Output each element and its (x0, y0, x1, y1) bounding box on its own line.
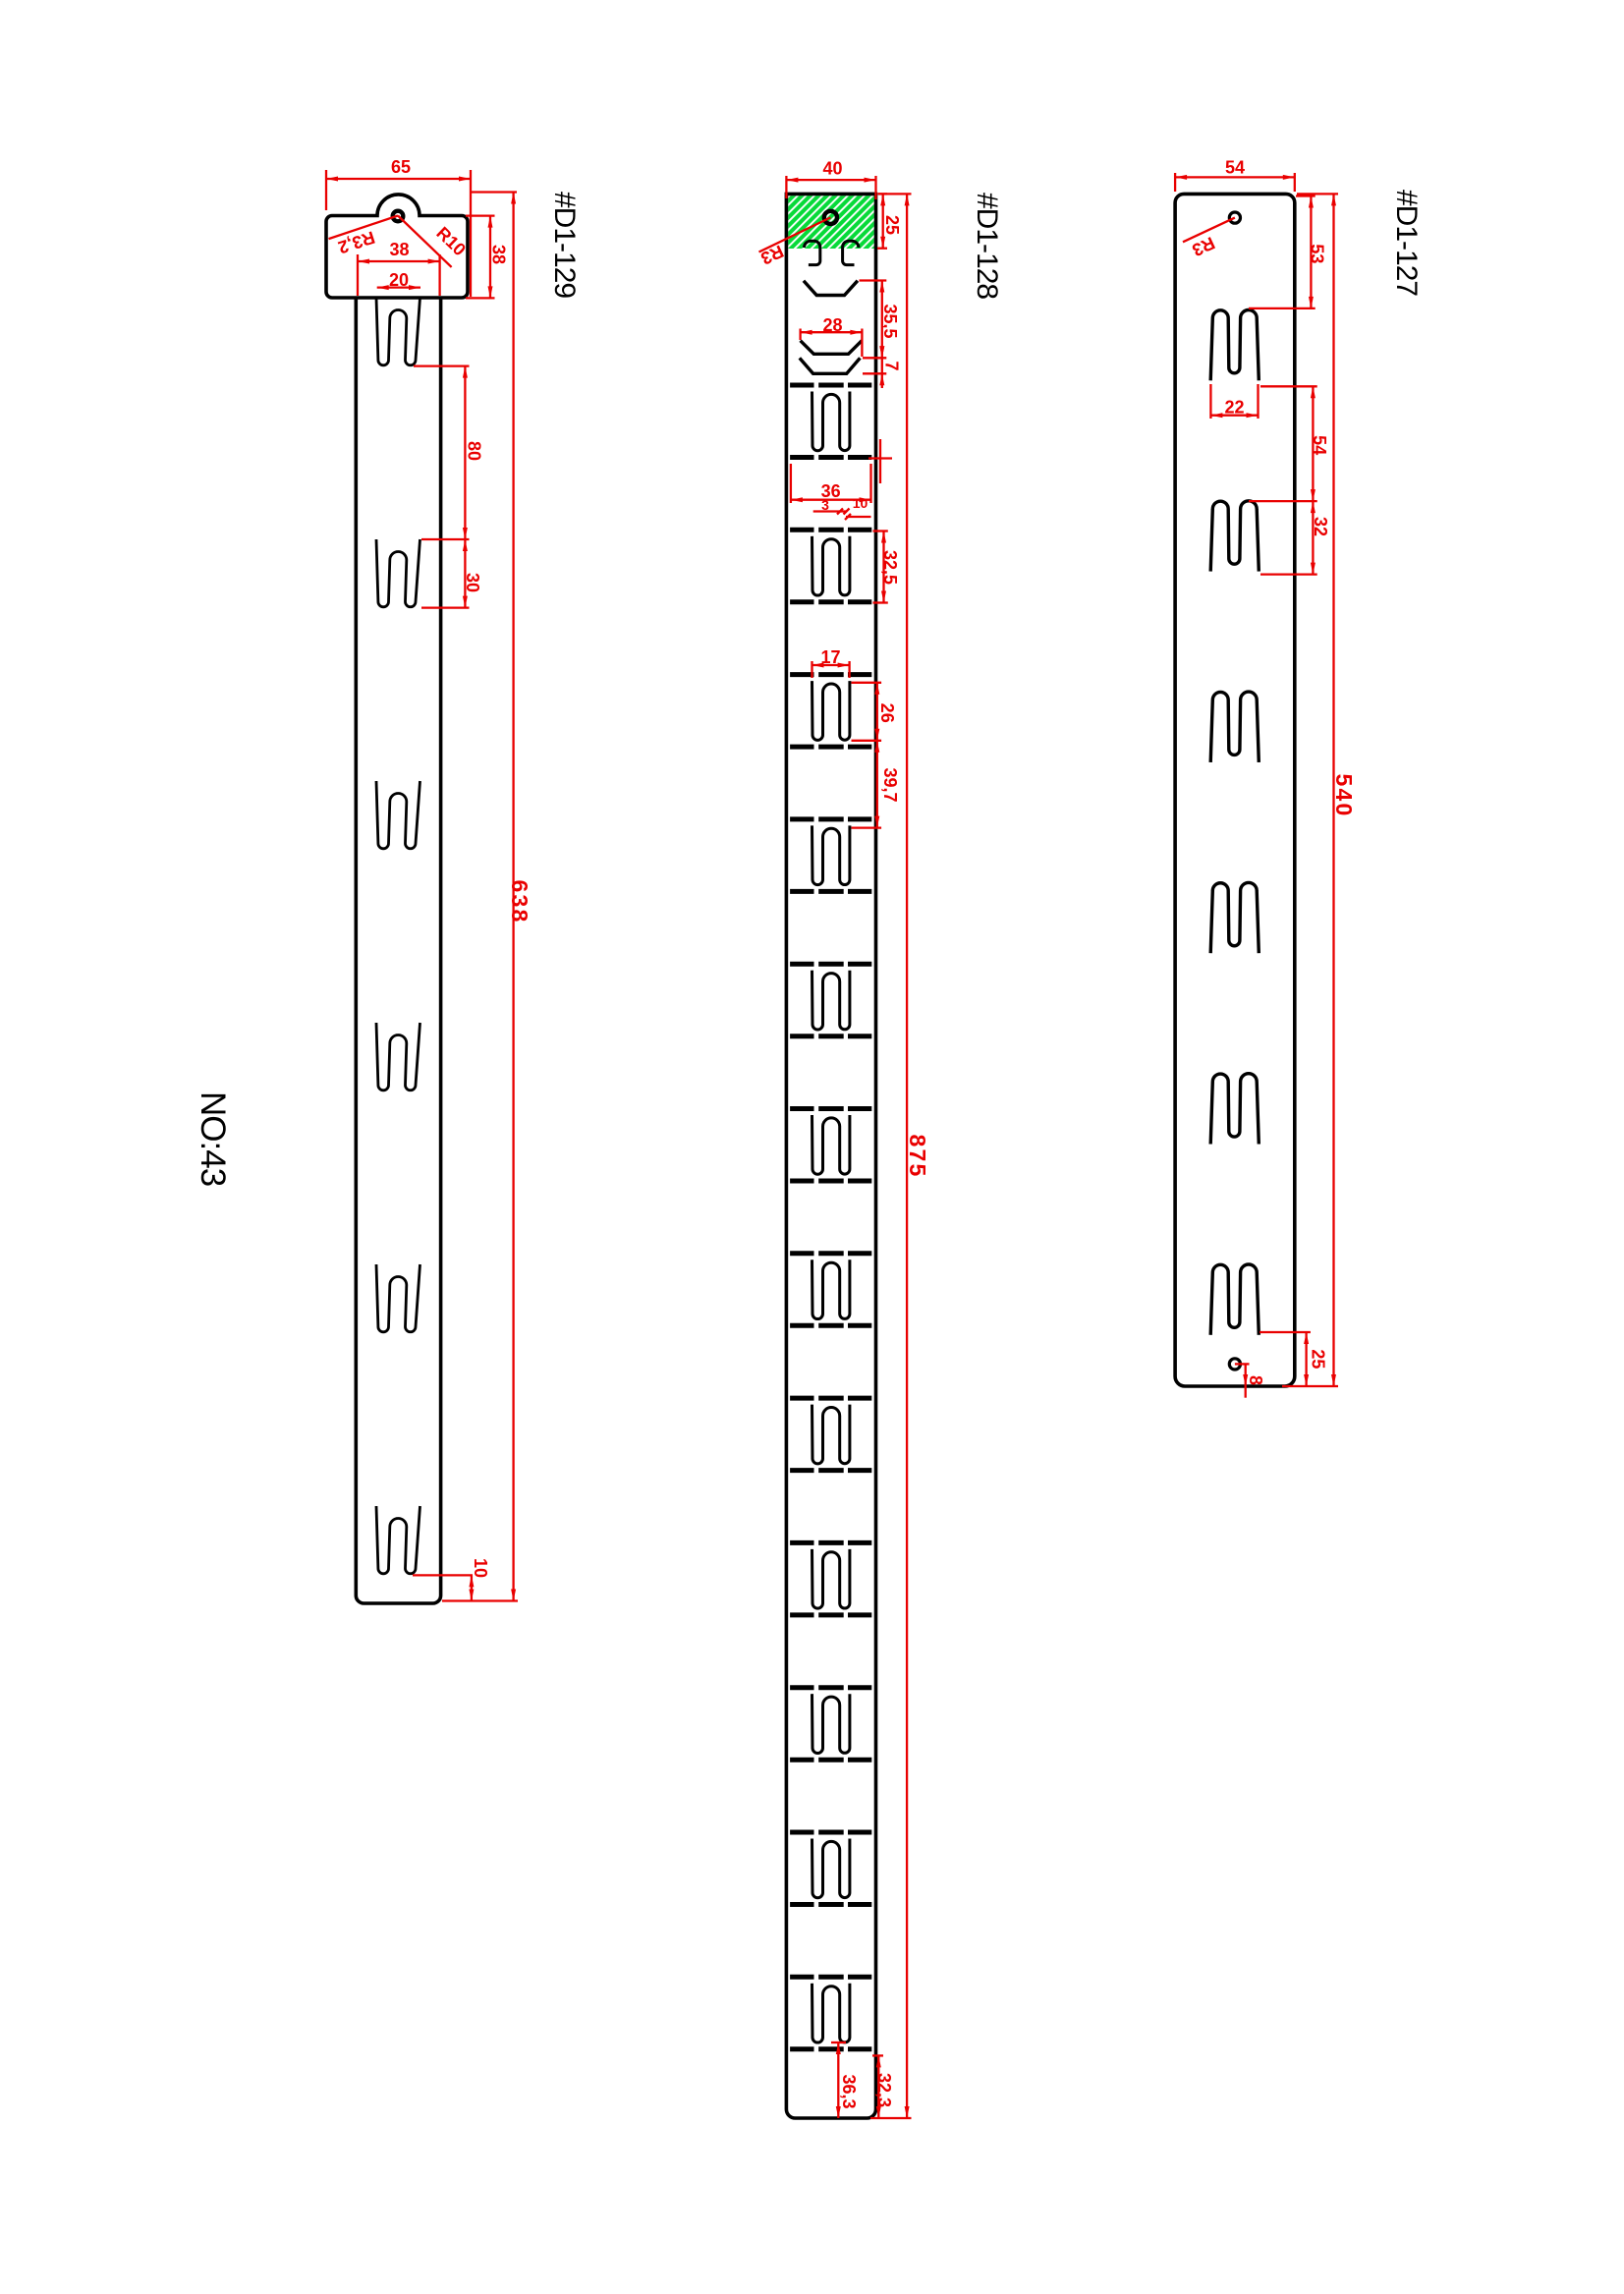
svg-text:875: 875 (905, 1135, 930, 1179)
svg-text:638: 638 (507, 880, 532, 924)
svg-text:#D1-129: #D1-129 (548, 192, 581, 298)
svg-text:20: 20 (389, 270, 409, 290)
svg-text:7: 7 (882, 361, 902, 370)
svg-text:30: 30 (463, 573, 482, 592)
svg-text:25: 25 (882, 215, 902, 235)
svg-text:39,7: 39,7 (880, 767, 900, 802)
svg-text:NO:43: NO:43 (194, 1091, 232, 1186)
svg-text:17: 17 (820, 647, 840, 667)
svg-text:80: 80 (465, 441, 484, 461)
svg-text:10: 10 (471, 1558, 490, 1578)
svg-text:8: 8 (1246, 1375, 1265, 1385)
svg-text:38: 38 (389, 240, 409, 259)
svg-text:32,3: 32,3 (874, 2073, 894, 2107)
svg-text:10: 10 (853, 495, 868, 511)
svg-text:540: 540 (1331, 774, 1357, 818)
svg-text:54: 54 (1225, 158, 1245, 178)
svg-text:3: 3 (821, 497, 829, 513)
svg-text:32,5: 32,5 (880, 550, 900, 585)
svg-text:40: 40 (822, 159, 842, 179)
svg-text:36,3: 36,3 (839, 2074, 859, 2108)
svg-text:22: 22 (1224, 398, 1244, 418)
svg-text:35,5: 35,5 (880, 304, 900, 338)
svg-text:#D1-128: #D1-128 (971, 193, 1003, 299)
svg-text:28: 28 (822, 315, 842, 335)
svg-text:25: 25 (1308, 1349, 1327, 1369)
svg-text:53: 53 (1308, 244, 1327, 263)
svg-text:32: 32 (1311, 517, 1330, 536)
svg-text:54: 54 (1310, 435, 1329, 455)
svg-text:38: 38 (488, 245, 508, 264)
svg-text:#D1-127: #D1-127 (1390, 190, 1423, 296)
svg-text:26: 26 (877, 703, 897, 723)
svg-text:65: 65 (391, 157, 411, 177)
